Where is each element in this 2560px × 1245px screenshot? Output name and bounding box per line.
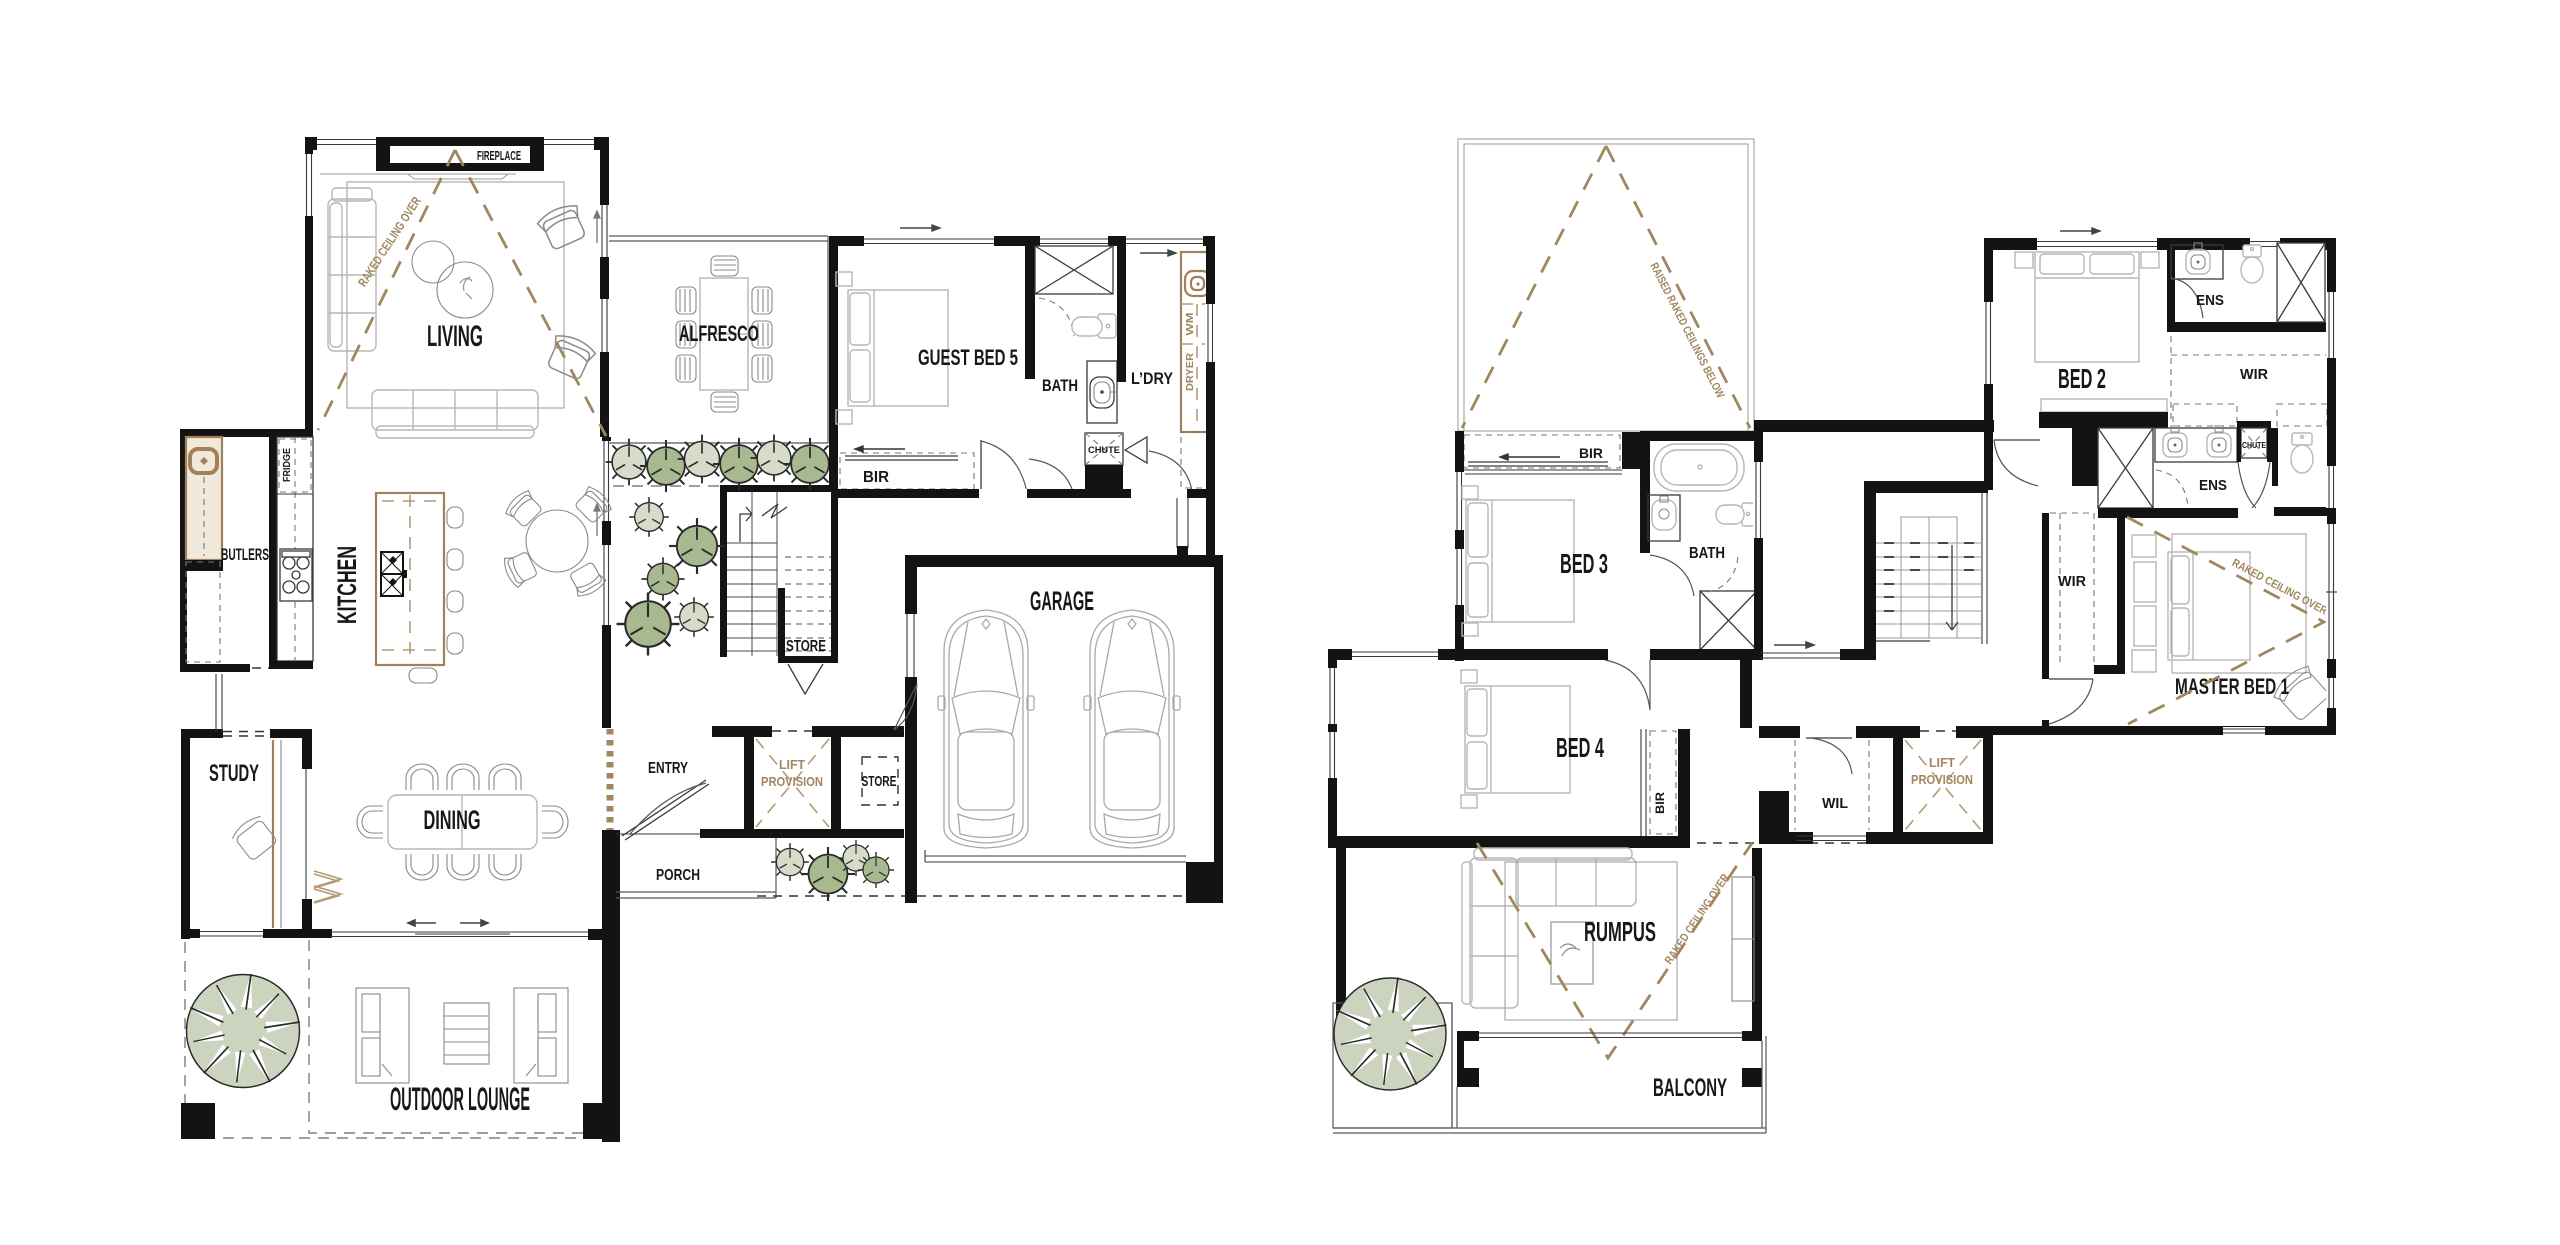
svg-text:MASTER BED 1: MASTER BED 1 [2175,674,2289,699]
svg-text:LIFT: LIFT [779,758,805,772]
svg-text:BALCONY: BALCONY [1653,1074,1727,1102]
svg-text:DRYER: DRYER [1184,353,1196,391]
svg-text:CHUTE: CHUTE [2242,440,2266,450]
svg-text:BATH: BATH [1689,545,1725,562]
svg-text:GARAGE: GARAGE [1030,586,1094,616]
svg-text:WM: WM [1184,312,1196,335]
svg-text:BUTLERS: BUTLERS [221,545,269,564]
svg-text:FIREPLACE: FIREPLACE [477,148,521,163]
svg-text:BED 2: BED 2 [2058,363,2106,394]
svg-text:WIR: WIR [2240,366,2268,383]
svg-text:LIVING: LIVING [427,320,483,353]
svg-text:KITCHEN: KITCHEN [332,546,362,624]
svg-text:ENS: ENS [2199,477,2227,494]
svg-text:BIR: BIR [1579,445,1603,461]
svg-text:PROVISION: PROVISION [761,775,823,789]
svg-text:WIL: WIL [1822,795,1848,812]
svg-text:RUMPUS: RUMPUS [1584,916,1656,947]
svg-text:DINING: DINING [424,805,481,835]
svg-text:STORE: STORE [862,773,897,790]
svg-text:WIR: WIR [2058,573,2086,590]
svg-text:ENTRY: ENTRY [648,760,688,777]
svg-text:BED 4: BED 4 [1556,732,1604,763]
svg-text:PROVISION: PROVISION [1911,773,1973,787]
svg-text:LIFT: LIFT [1929,756,1955,770]
svg-text:CHUTE: CHUTE [1088,445,1120,456]
svg-text:ENS: ENS [2196,292,2224,309]
svg-text:STORE: STORE [786,638,826,655]
svg-text:BIR: BIR [863,469,889,486]
svg-text:BIR: BIR [1653,792,1667,814]
svg-text:GUEST BED 5: GUEST BED 5 [918,345,1018,370]
svg-text:L’DRY: L’DRY [1131,369,1174,388]
svg-text:FRIDGE: FRIDGE [282,448,293,482]
svg-text:BATH: BATH [1042,376,1078,395]
svg-text:PORCH: PORCH [656,867,700,884]
svg-text:OUTDOOR LOUNGE: OUTDOOR LOUNGE [390,1081,530,1117]
svg-text:BED 3: BED 3 [1560,548,1608,579]
svg-text:STUDY: STUDY [209,760,259,787]
svg-text:ALFRESCO: ALFRESCO [679,321,759,346]
